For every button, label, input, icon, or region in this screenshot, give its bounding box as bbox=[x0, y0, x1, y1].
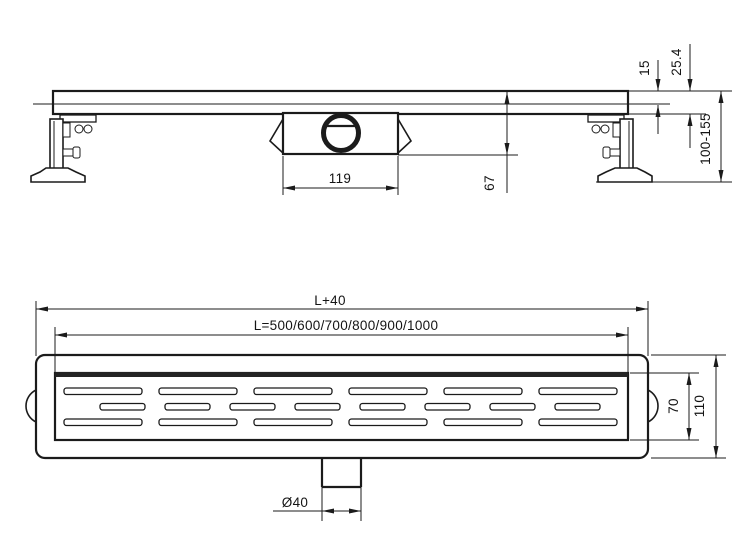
dim-trap-length: 119 bbox=[283, 156, 398, 195]
foot-bracket bbox=[588, 115, 624, 122]
adjustable-foot-right bbox=[588, 115, 652, 182]
trap-wing-right bbox=[398, 119, 411, 153]
grate-slot bbox=[490, 404, 535, 411]
foot-clamp bbox=[63, 123, 70, 137]
dim-label-grate-width: 70 bbox=[666, 398, 681, 414]
wing-nut-icon bbox=[84, 125, 92, 133]
grate-slot bbox=[254, 388, 332, 395]
grate-slot bbox=[349, 419, 427, 426]
foot-bracket bbox=[60, 115, 96, 122]
dim-label-overall-length: L+40 bbox=[314, 293, 346, 308]
grate-slot bbox=[230, 404, 275, 411]
grate-slot bbox=[159, 388, 237, 395]
grate-slot bbox=[64, 419, 142, 426]
dim-label-length-options: L=500/600/700/800/900/1000 bbox=[254, 318, 439, 333]
trap-wing-left bbox=[270, 119, 283, 153]
dim-arrow bbox=[656, 79, 661, 91]
dim-arrow bbox=[688, 114, 693, 126]
wing-nut-icon bbox=[601, 125, 609, 133]
dim-arrow bbox=[687, 373, 692, 385]
side-elevation-view: 119 67 15 25.4 bbox=[31, 44, 732, 195]
foot-base bbox=[598, 168, 652, 182]
dim-arrow bbox=[714, 355, 719, 367]
dim-arrow bbox=[505, 143, 510, 155]
dim-arrow bbox=[616, 333, 628, 338]
adjustable-foot-left bbox=[31, 115, 96, 182]
grate-slot bbox=[100, 404, 145, 411]
grate-slot bbox=[444, 388, 522, 395]
dim-outlet-diameter: Ø40 bbox=[273, 487, 361, 521]
knob-head bbox=[603, 147, 610, 158]
foot-base bbox=[31, 168, 85, 182]
grate-slot bbox=[360, 404, 405, 411]
wing-nut-icon bbox=[592, 125, 600, 133]
grate-slot bbox=[295, 404, 340, 411]
drain-trap bbox=[270, 113, 411, 154]
dim-label-body-width: 110 bbox=[692, 395, 707, 417]
dim-label-trap-length: 119 bbox=[329, 171, 351, 186]
grate-top-band bbox=[55, 372, 628, 377]
dim-arrow bbox=[36, 307, 48, 312]
outlet-stub bbox=[322, 458, 361, 487]
foot-post bbox=[50, 119, 63, 171]
foot-clamp bbox=[613, 123, 620, 137]
dim-arrow bbox=[636, 307, 648, 312]
grate-slot bbox=[254, 419, 332, 426]
grate-slot bbox=[159, 419, 237, 426]
dim-grate-height: 15 bbox=[637, 60, 661, 134]
dim-label-outlet-diameter: Ø40 bbox=[282, 495, 308, 510]
dim-arrow bbox=[349, 509, 361, 514]
grate-slot bbox=[555, 404, 600, 411]
drawing-svg: 119 67 15 25.4 bbox=[0, 0, 738, 555]
grate-slot bbox=[425, 404, 470, 411]
dim-arrow bbox=[719, 170, 724, 182]
channel-body-profile bbox=[53, 91, 628, 114]
dim-label-grate-height: 15 bbox=[637, 60, 652, 76]
dim-arrow bbox=[283, 186, 295, 191]
grate-slot bbox=[349, 388, 427, 395]
knob-head bbox=[73, 147, 80, 158]
dim-arrow bbox=[55, 333, 67, 338]
dim-adjust-range: 100-155 bbox=[698, 91, 724, 182]
foot-post bbox=[620, 119, 633, 171]
grate-slot bbox=[165, 404, 210, 411]
grate-slot bbox=[444, 419, 522, 426]
dim-arrow bbox=[714, 446, 719, 458]
grate-slot bbox=[539, 419, 617, 426]
end-cap-arc-right bbox=[648, 390, 658, 422]
dim-label-edge-height: 25.4 bbox=[669, 48, 684, 76]
knob-shaft bbox=[63, 149, 73, 156]
grate-slot bbox=[539, 388, 617, 395]
dim-edge-height: 25.4 bbox=[669, 44, 693, 148]
top-plan-view: L+40 L=500/600/700/800/900/1000 70 bbox=[26, 293, 726, 521]
trap-box bbox=[283, 113, 398, 154]
dim-arrow bbox=[688, 79, 693, 91]
grate-slot bbox=[64, 388, 142, 395]
dim-arrow bbox=[322, 509, 334, 514]
knob-shaft bbox=[610, 149, 620, 156]
dim-arrow bbox=[719, 91, 724, 103]
dim-arrow bbox=[386, 186, 398, 191]
dim-arrow bbox=[687, 428, 692, 440]
dim-arrow bbox=[656, 105, 661, 117]
wing-nut-icon bbox=[75, 125, 83, 133]
dim-label-adjust-range: 100-155 bbox=[698, 113, 713, 165]
dim-label-trap-depth: 67 bbox=[482, 175, 497, 191]
end-cap-arc-left bbox=[26, 390, 36, 422]
technical-drawing: 119 67 15 25.4 bbox=[0, 0, 738, 555]
